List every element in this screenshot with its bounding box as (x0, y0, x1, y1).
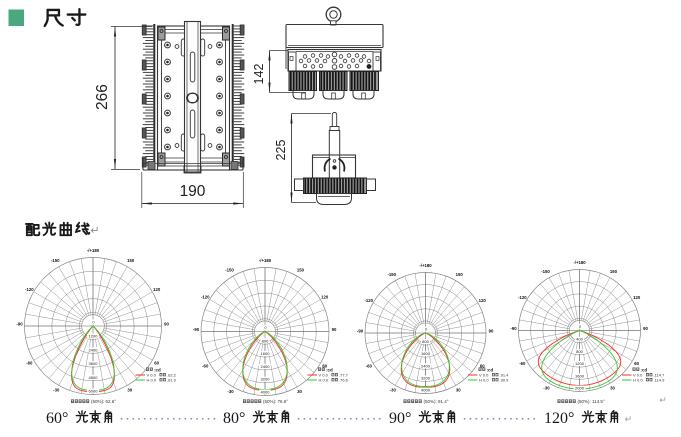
svg-text:-60: -60 (519, 361, 526, 366)
svg-text:-150: -150 (51, 258, 60, 263)
svg-text:-/+180: -/+180 (259, 258, 272, 263)
svg-text:225: 225 (274, 140, 288, 161)
svg-text:(50%): 91.4°: (50%): 91.4° (424, 399, 449, 404)
svg-text:2400: 2400 (421, 363, 431, 368)
svg-text:↵: ↵ (659, 395, 667, 405)
svg-text:120°: 120° (544, 410, 574, 427)
svg-text:150: 150 (610, 269, 618, 274)
svg-text:↵: ↵ (625, 414, 633, 424)
svg-text:-30: -30 (543, 385, 550, 390)
svg-text:-30: -30 (390, 387, 397, 392)
svg-text:150: 150 (127, 258, 135, 263)
svg-text:30: 30 (297, 389, 302, 394)
svg-text:60°: 60° (46, 410, 68, 427)
svg-text:90°: 90° (389, 410, 411, 427)
svg-text:.90.9: .90.9 (500, 378, 510, 383)
svg-text:1600: 1600 (575, 373, 585, 378)
svg-text:-120: -120 (364, 298, 373, 303)
svg-text:30: 30 (610, 385, 615, 390)
svg-text:30: 30 (456, 387, 461, 392)
svg-text:-60: -60 (366, 363, 373, 368)
svg-text:120: 120 (633, 295, 641, 300)
svg-text:4000: 4000 (421, 388, 431, 393)
svg-text:4800: 4800 (89, 375, 99, 380)
svg-text:-90: -90 (193, 327, 200, 332)
svg-text:.61.9: .61.9 (167, 378, 177, 383)
svg-text:1600: 1600 (421, 351, 431, 356)
svg-text:150: 150 (456, 272, 464, 277)
svg-text:80°: 80° (223, 410, 245, 427)
svg-text:190: 190 (180, 183, 206, 200)
svg-text:(50%): 76.6°: (50%): 76.6° (263, 399, 288, 404)
svg-text:H 0.0: H 0.0 (633, 378, 643, 383)
svg-text:.114.9: .114.9 (654, 378, 666, 383)
svg-text:-30: -30 (53, 387, 60, 392)
svg-text:800: 800 (576, 349, 583, 354)
svg-text:-120: -120 (25, 287, 34, 292)
svg-text:-90: -90 (16, 322, 23, 327)
svg-text:(50%): 114.5°: (50%): 114.5° (578, 399, 605, 404)
svg-text:-150: -150 (387, 272, 396, 277)
svg-text:800: 800 (422, 339, 429, 344)
svg-text:-150: -150 (225, 268, 234, 273)
svg-text:.76.6: .76.6 (339, 378, 349, 383)
svg-text:3200: 3200 (421, 375, 431, 380)
svg-text:-/+180: -/+180 (573, 260, 586, 265)
svg-text:2000: 2000 (575, 386, 585, 391)
svg-text:60: 60 (634, 361, 639, 366)
svg-text:400: 400 (576, 337, 583, 342)
svg-text:30: 30 (127, 387, 132, 392)
svg-text:-120: -120 (201, 295, 210, 300)
svg-text:-/+180: -/+180 (87, 248, 100, 253)
svg-text:H 0.0: H 0.0 (147, 378, 157, 383)
svg-text:90: 90 (164, 322, 169, 327)
svg-text:6000: 6000 (89, 389, 99, 394)
svg-text:4000: 4000 (261, 390, 271, 395)
svg-text:120: 120 (321, 295, 329, 300)
svg-text:-60: -60 (26, 360, 33, 365)
svg-text:-30: -30 (227, 389, 234, 394)
svg-text:150: 150 (297, 268, 305, 273)
svg-text:120: 120 (153, 287, 161, 292)
svg-text:142: 142 (252, 64, 266, 85)
svg-text:90: 90 (332, 327, 337, 332)
svg-text:120: 120 (479, 298, 487, 303)
svg-text:800: 800 (262, 338, 269, 343)
svg-text:3600: 3600 (89, 361, 99, 366)
svg-text:-60: -60 (202, 364, 209, 369)
svg-text:H 0.0: H 0.0 (479, 378, 489, 383)
svg-text:-/+180: -/+180 (419, 263, 432, 268)
svg-text:60: 60 (154, 360, 159, 365)
svg-text:2400: 2400 (261, 364, 271, 369)
svg-text:1200: 1200 (89, 334, 99, 339)
svg-text:-90: -90 (357, 329, 364, 334)
svg-text:3200: 3200 (261, 377, 271, 382)
svg-text:(50%): 62.6°: (50%): 62.6° (91, 399, 116, 404)
svg-text:-90: -90 (510, 326, 517, 331)
svg-text:90: 90 (643, 326, 648, 331)
svg-text:-120: -120 (518, 295, 527, 300)
svg-text:2400: 2400 (89, 347, 99, 352)
svg-text:↵: ↵ (90, 225, 99, 237)
svg-text:90: 90 (489, 329, 494, 334)
svg-text:266: 266 (94, 84, 111, 110)
svg-text:1600: 1600 (261, 351, 271, 356)
svg-text:1200: 1200 (575, 361, 585, 366)
svg-text:H 0.0: H 0.0 (319, 378, 329, 383)
svg-text:-150: -150 (541, 269, 550, 274)
